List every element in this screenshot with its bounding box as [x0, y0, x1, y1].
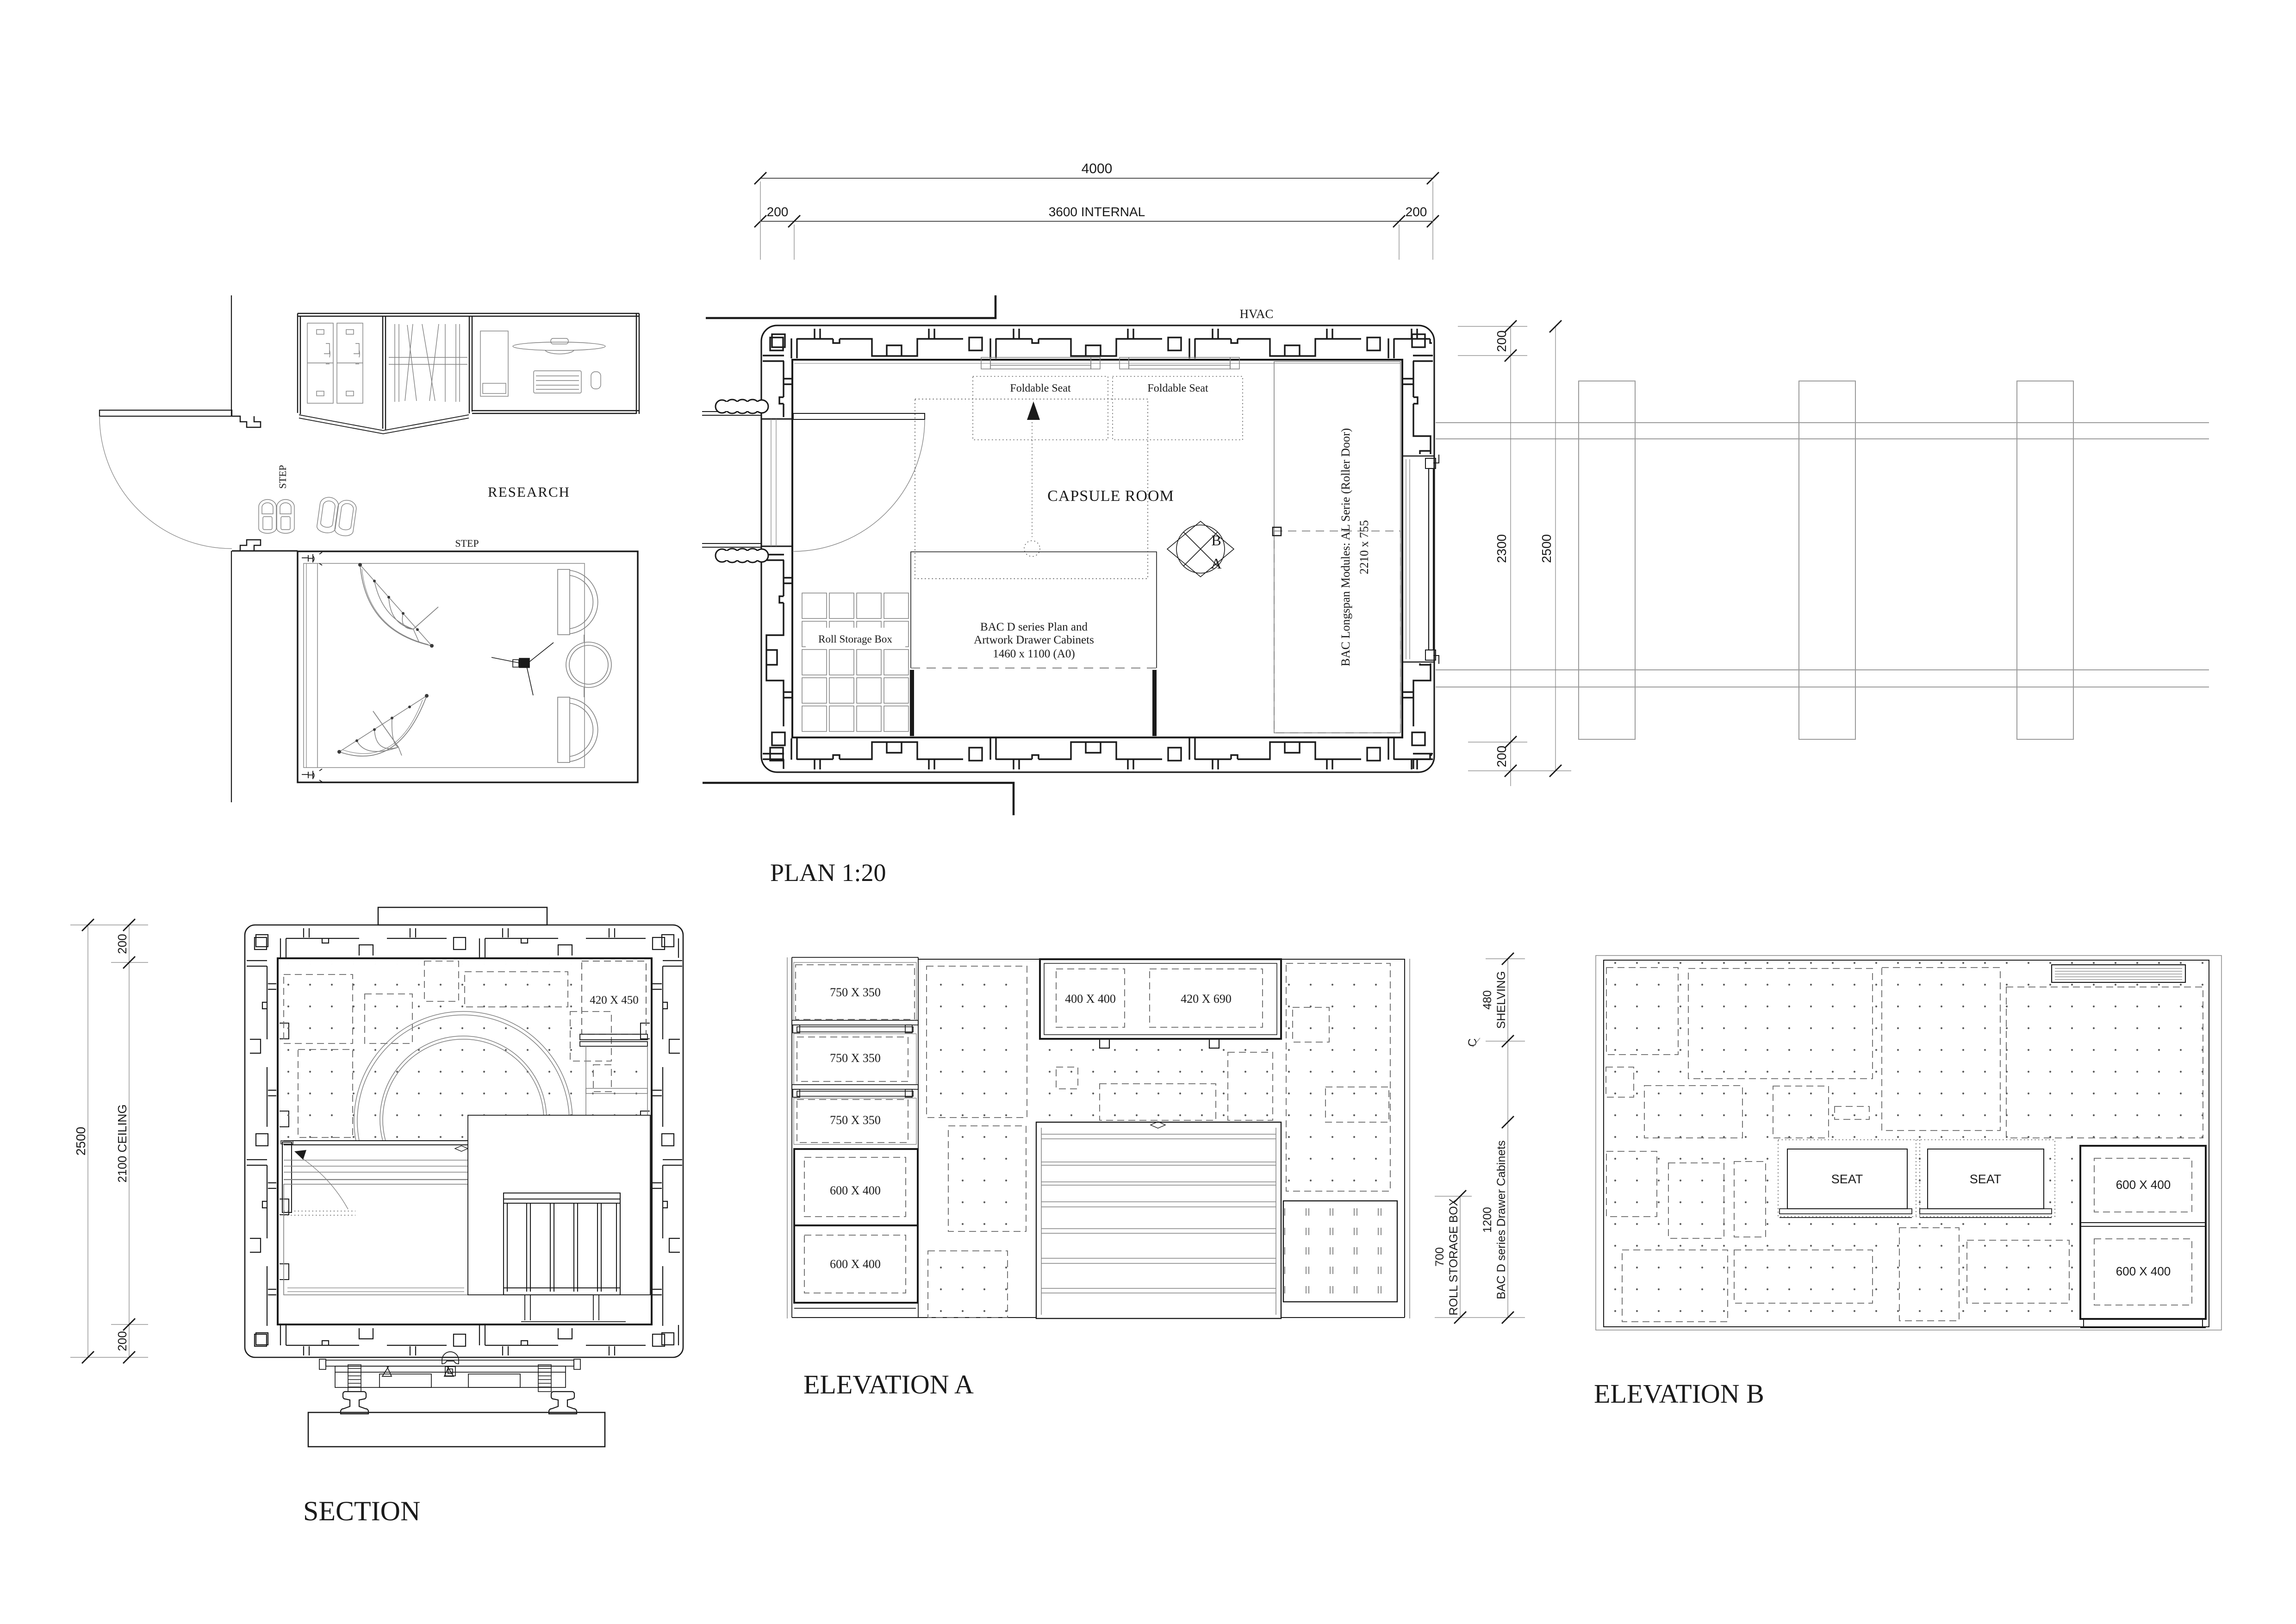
svg-text:BAC D series Drawer Cabinets: BAC D series Drawer Cabinets — [1495, 1140, 1508, 1299]
svg-text:ROLL STORAGE BOX: ROLL STORAGE BOX — [1447, 1198, 1460, 1315]
svg-text:Roll Storage Box: Roll Storage Box — [818, 633, 892, 645]
svg-text:750 X 350: 750 X 350 — [830, 986, 881, 999]
svg-text:BAC D series Plan and: BAC D series Plan and — [980, 621, 1088, 633]
svg-text:1200: 1200 — [1481, 1207, 1494, 1233]
svg-text:ELEVATION A: ELEVATION A — [803, 1369, 974, 1399]
svg-text:SEAT: SEAT — [1831, 1172, 1863, 1186]
svg-text:A: A — [1211, 555, 1221, 572]
svg-text:1460 x 1100 (A0): 1460 x 1100 (A0) — [993, 648, 1075, 660]
svg-text:C: C — [1466, 1038, 1479, 1047]
svg-text:600 X 400: 600 X 400 — [2116, 1178, 2171, 1192]
svg-text:750 X 350: 750 X 350 — [830, 1113, 881, 1127]
svg-text:Foldable Seat: Foldable Seat — [1147, 382, 1208, 394]
svg-text:200: 200 — [115, 934, 129, 954]
svg-text:700: 700 — [1433, 1247, 1446, 1267]
svg-text:SHELVING: SHELVING — [1495, 971, 1508, 1029]
svg-text:600 X 400: 600 X 400 — [830, 1257, 881, 1271]
svg-text:200: 200 — [1494, 331, 1509, 352]
svg-text:4000: 4000 — [1082, 161, 1113, 176]
svg-text:ELEVATION B: ELEVATION B — [1594, 1379, 1764, 1409]
svg-text:RESEARCH: RESEARCH — [488, 484, 570, 500]
svg-text:420 X 690: 420 X 690 — [1181, 992, 1232, 1006]
svg-text:2300: 2300 — [1494, 534, 1509, 563]
svg-text:400 X 400: 400 X 400 — [1065, 992, 1116, 1006]
svg-text:B: B — [1211, 532, 1221, 549]
svg-text:Artwork Drawer Cabinets: Artwork Drawer Cabinets — [974, 634, 1094, 646]
svg-text:2500: 2500 — [74, 1127, 88, 1156]
svg-text:600 X 400: 600 X 400 — [2116, 1264, 2171, 1278]
svg-text:CAPSULE ROOM: CAPSULE ROOM — [1047, 487, 1174, 505]
svg-text:750 X 350: 750 X 350 — [830, 1051, 881, 1065]
svg-text:480: 480 — [1481, 990, 1494, 1010]
svg-text:2210 x 755: 2210 x 755 — [1357, 520, 1371, 575]
svg-text:200: 200 — [1406, 205, 1427, 219]
svg-text:3600 INTERNAL: 3600 INTERNAL — [1049, 205, 1145, 219]
svg-text:BAC Longspan Modules: AL Serie: BAC Longspan Modules: AL Serie (Roller D… — [1339, 428, 1352, 667]
svg-text:200: 200 — [1494, 746, 1509, 768]
svg-text:Foldable Seat: Foldable Seat — [1010, 382, 1071, 394]
svg-text:600 X 400: 600 X 400 — [830, 1184, 881, 1197]
svg-text:HVAC: HVAC — [1239, 307, 1273, 321]
svg-text:420 X 450: 420 X 450 — [590, 994, 639, 1006]
svg-text:SECTION: SECTION — [303, 1496, 420, 1526]
svg-text:PLAN 1:20: PLAN 1:20 — [770, 859, 886, 887]
svg-text:200: 200 — [767, 205, 789, 219]
svg-text:2500: 2500 — [1539, 534, 1554, 563]
svg-text:STEP: STEP — [455, 537, 479, 549]
svg-text:STEP: STEP — [277, 465, 288, 488]
svg-text:2100 CEILING: 2100 CEILING — [115, 1104, 129, 1182]
svg-text:SEAT: SEAT — [1970, 1172, 2002, 1186]
svg-text:200: 200 — [115, 1331, 129, 1351]
